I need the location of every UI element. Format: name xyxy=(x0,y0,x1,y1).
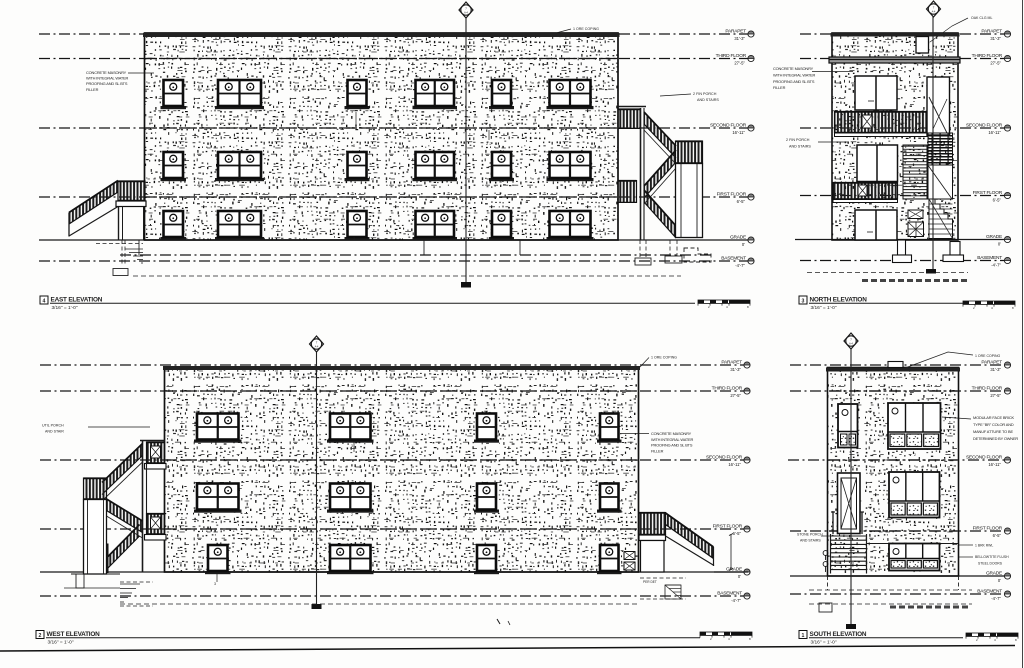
svg-text:GRADE: GRADE xyxy=(986,234,1002,240)
svg-text:6'-5": 6'-5" xyxy=(993,533,1002,538)
svg-text:16'-11": 16'-11" xyxy=(988,462,1001,467)
svg-text:3/16" = 1'-0": 3/16" = 1'-0" xyxy=(811,640,837,646)
svg-text:A-4: A-4 xyxy=(849,342,853,345)
svg-text:16'-11": 16'-11" xyxy=(988,130,1001,135)
svg-text:31'-3": 31'-3" xyxy=(990,36,1001,41)
svg-text:0': 0' xyxy=(738,574,741,579)
svg-text:16'-11": 16'-11" xyxy=(728,462,741,467)
svg-text:GRADE: GRADE xyxy=(730,234,746,240)
svg-text:AND STAIRS: AND STAIRS xyxy=(800,539,821,543)
svg-text:-4'-7": -4'-7" xyxy=(735,263,745,268)
svg-text:6'-5": 6'-5" xyxy=(993,198,1002,203)
svg-text:31'-3": 31'-3" xyxy=(990,367,1001,372)
svg-text:3: 3 xyxy=(353,144,355,148)
svg-text:3: 3 xyxy=(351,444,353,448)
svg-text:6'-5": 6'-5" xyxy=(737,199,746,204)
svg-text:6'-5": 6'-5" xyxy=(733,531,742,536)
svg-text:DETERMINED BY OWNER: DETERMINED BY OWNER xyxy=(973,436,1018,441)
svg-text:UTIL PORCH: UTIL PORCH xyxy=(42,424,64,428)
svg-text:BASEMENT: BASEMENT xyxy=(977,255,1002,261)
svg-text:SECOND FLOOR: SECOND FLOOR xyxy=(966,454,1003,460)
svg-text:3: 3 xyxy=(214,582,216,586)
svg-text:THIRD FLOOR: THIRD FLOOR xyxy=(716,53,747,59)
svg-text:WEST ELEVATION: WEST ELEVATION xyxy=(47,631,101,638)
svg-text:A-4: A-4 xyxy=(315,345,319,348)
svg-text:2: 2 xyxy=(914,453,916,457)
svg-text:1 BRK RWL: 1 BRK RWL xyxy=(975,544,993,548)
svg-text:MANUF ATTURE TO BE: MANUF ATTURE TO BE xyxy=(973,429,1013,434)
svg-text:PARAPET: PARAPET xyxy=(725,28,746,34)
svg-text:NORTH ELEVATION: NORTH ELEVATION xyxy=(810,297,868,304)
svg-text:27'-5": 27'-5" xyxy=(990,393,1001,398)
svg-text:0': 0' xyxy=(998,578,1001,583)
svg-text:SECOND FLOOR: SECOND FLOOR xyxy=(710,122,747,128)
svg-text:0': 0' xyxy=(742,242,745,247)
svg-text:4: 4 xyxy=(43,298,46,304)
svg-text:-4'-7": -4'-7" xyxy=(991,263,1001,268)
svg-text:AND STAIRS: AND STAIRS xyxy=(697,98,719,102)
svg-text:PROOFING AND SL BTS: PROOFING AND SL BTS xyxy=(773,79,815,84)
svg-text:WITH INTEGRAL WATER: WITH INTEGRAL WATER xyxy=(651,437,694,442)
svg-text:FIRST FLOOR: FIRST FLOOR xyxy=(713,523,743,529)
svg-text:CONCRETE MASONRY: CONCRETE MASONRY xyxy=(651,431,692,436)
svg-text:EAST ELEVATION: EAST ELEVATION xyxy=(51,297,103,304)
svg-text:2: 2 xyxy=(39,633,42,639)
svg-text:A-4: A-4 xyxy=(932,10,936,13)
svg-text:CONCRETE MASONRY: CONCRETE MASONRY xyxy=(773,66,814,71)
svg-text:BASEMENT: BASEMENT xyxy=(717,590,742,596)
svg-text:BASEMENT: BASEMENT xyxy=(977,588,1002,594)
svg-text:BELLOWTITE FLUSH: BELLOWTITE FLUSH xyxy=(975,555,1009,559)
svg-text:3/16" = 1'-0": 3/16" = 1'-0" xyxy=(52,305,78,311)
svg-text:FILLER: FILLER xyxy=(86,87,99,92)
svg-text:31'-3": 31'-3" xyxy=(734,36,745,41)
svg-text:27'-5": 27'-5" xyxy=(730,393,741,398)
svg-text:1 ORE COPING: 1 ORE COPING xyxy=(651,356,677,360)
svg-text:-4'-7": -4'-7" xyxy=(731,598,741,603)
svg-text:27'-5": 27'-5" xyxy=(734,61,745,66)
svg-text:PARAPET: PARAPET xyxy=(981,359,1002,365)
svg-text:PARAPET: PARAPET xyxy=(981,28,1002,34)
svg-text:GRADE: GRADE xyxy=(986,570,1002,576)
svg-text:2: 2 xyxy=(914,522,916,526)
svg-text:2: 2 xyxy=(351,513,353,517)
svg-text:16'-11": 16'-11" xyxy=(732,130,745,135)
svg-text:STEEL DOORS: STEEL DOORS xyxy=(978,562,1003,566)
svg-text:3/16" = 1'-0": 3/16" = 1'-0" xyxy=(811,305,837,311)
svg-text:PARAPET: PARAPET xyxy=(721,359,742,365)
svg-text:FILLER: FILLER xyxy=(651,448,664,453)
svg-text:MODULAR FACE BRICK: MODULAR FACE BRICK xyxy=(973,415,1015,420)
svg-text:BASEMENT: BASEMENT xyxy=(721,255,746,261)
svg-text:PROOFING AND SL BTS: PROOFING AND SL BTS xyxy=(86,81,128,86)
svg-text:3: 3 xyxy=(802,298,805,304)
svg-text:PROOFING AND SL BTS: PROOFING AND SL BTS xyxy=(651,443,693,448)
svg-text:SOUTH ELEVATION: SOUTH ELEVATION xyxy=(810,631,867,638)
svg-text:A-4: A-4 xyxy=(464,11,468,14)
svg-text:PER DET: PER DET xyxy=(643,580,657,584)
svg-text:TYPE "BR" COLOR AND: TYPE "BR" COLOR AND xyxy=(973,422,1014,427)
svg-text:2 FIN PORCH: 2 FIN PORCH xyxy=(693,92,717,96)
svg-text:THIRD FLOOR: THIRD FLOOR xyxy=(972,385,1003,391)
svg-text:1 ORE COPING: 1 ORE COPING xyxy=(975,354,1001,358)
svg-text:2 2: 2 2 xyxy=(486,141,492,146)
svg-text:CONCRETE MASONRY: CONCRETE MASONRY xyxy=(86,70,127,75)
svg-text:FILLER: FILLER xyxy=(773,85,786,90)
svg-text:SECOND FLOOR: SECOND FLOOR xyxy=(966,122,1003,128)
svg-text:GRADE: GRADE xyxy=(726,566,742,572)
svg-text:2 FIN PORCH: 2 FIN PORCH xyxy=(786,138,810,142)
svg-text:STONE PORCH: STONE PORCH xyxy=(797,533,823,537)
svg-text:FIRST FLOOR: FIRST FLOOR xyxy=(717,191,747,197)
svg-text:FIRST FLOOR: FIRST FLOOR xyxy=(973,525,1003,531)
svg-text:THIRD FLOOR: THIRD FLOOR xyxy=(712,385,743,391)
svg-text:1: 1 xyxy=(802,633,805,639)
svg-text:OAK CLG ML: OAK CLG ML xyxy=(971,16,992,20)
svg-text:3/16" = 1'-0": 3/16" = 1'-0" xyxy=(48,640,74,646)
svg-text:AND STAIR: AND STAIR xyxy=(45,430,64,434)
svg-text:3: 3 xyxy=(353,237,355,241)
svg-text:FIRST FLOOR: FIRST FLOOR xyxy=(973,190,1003,196)
svg-text:1 ORE COPING: 1 ORE COPING xyxy=(573,27,599,31)
svg-text:31'-3": 31'-3" xyxy=(730,367,741,372)
svg-text:WITH INTEGRAL WATER: WITH INTEGRAL WATER xyxy=(86,76,129,81)
svg-text:SECOND FLOOR: SECOND FLOOR xyxy=(706,454,743,460)
svg-text:THIRD FLOOR: THIRD FLOOR xyxy=(972,53,1003,59)
svg-text:0': 0' xyxy=(998,242,1001,247)
svg-text:WITH INTEGRAL WATER: WITH INTEGRAL WATER xyxy=(773,72,816,77)
svg-text:27'-5": 27'-5" xyxy=(990,61,1001,66)
svg-text:AND STAIRS: AND STAIRS xyxy=(789,145,811,149)
svg-text:-4'-7": -4'-7" xyxy=(991,596,1001,601)
